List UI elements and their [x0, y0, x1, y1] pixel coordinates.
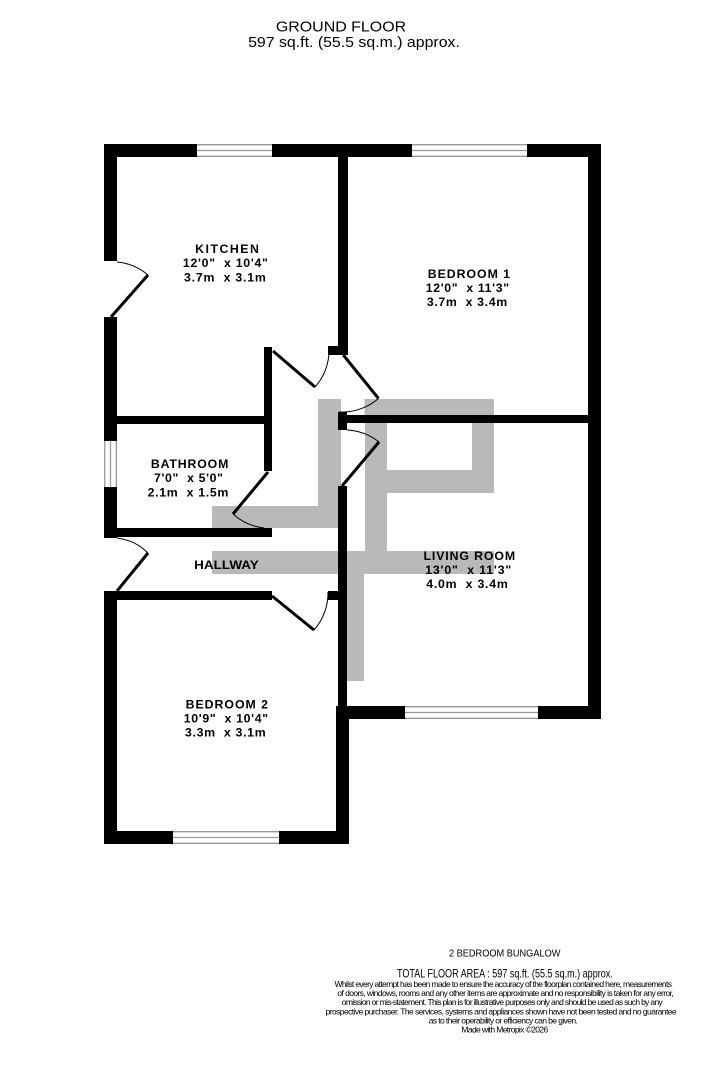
- svg-text:12'0" x 11'3": 12'0" x 11'3": [426, 281, 509, 295]
- svg-text:10'9" x 10'4": 10'9" x 10'4": [184, 711, 268, 725]
- svg-text:2.1m x 1.5m: 2.1m x 1.5m: [148, 485, 229, 499]
- svg-text:BEDROOM 1: BEDROOM 1: [428, 267, 510, 281]
- svg-text:GROUND FLOOR: GROUND FLOOR: [276, 20, 406, 36]
- svg-text:13'0" x 11'3": 13'0" x 11'3": [425, 563, 511, 577]
- svg-text:KITCHEN: KITCHEN: [195, 242, 259, 256]
- svg-text:3.7m x 3.4m: 3.7m x 3.4m: [427, 295, 507, 309]
- svg-text:12'0" x 10'4": 12'0" x 10'4": [183, 256, 268, 270]
- svg-text:BATHROOM: BATHROOM: [151, 457, 229, 471]
- svg-text:3.7m x 3.1m: 3.7m x 3.1m: [184, 271, 266, 285]
- svg-text:HALLWAY: HALLWAY: [194, 558, 259, 572]
- svg-text:3.3m x 3.1m: 3.3m x 3.1m: [185, 726, 266, 740]
- svg-text:Made with Metropix ©2026: Made with Metropix ©2026: [461, 1025, 548, 1035]
- svg-text:2 BEDROOM BUNGALOW: 2 BEDROOM BUNGALOW: [449, 949, 561, 960]
- svg-text:4.0m x 3.4m: 4.0m x 3.4m: [426, 577, 508, 591]
- svg-text:7'0" x 5'0": 7'0" x 5'0": [154, 471, 223, 485]
- svg-text:BEDROOM 2: BEDROOM 2: [186, 698, 269, 712]
- svg-text:597 sq.ft. (55.5 sq.m.) approx: 597 sq.ft. (55.5 sq.m.) approx.: [248, 35, 460, 51]
- svg-text:LIVING ROOM: LIVING ROOM: [424, 549, 516, 563]
